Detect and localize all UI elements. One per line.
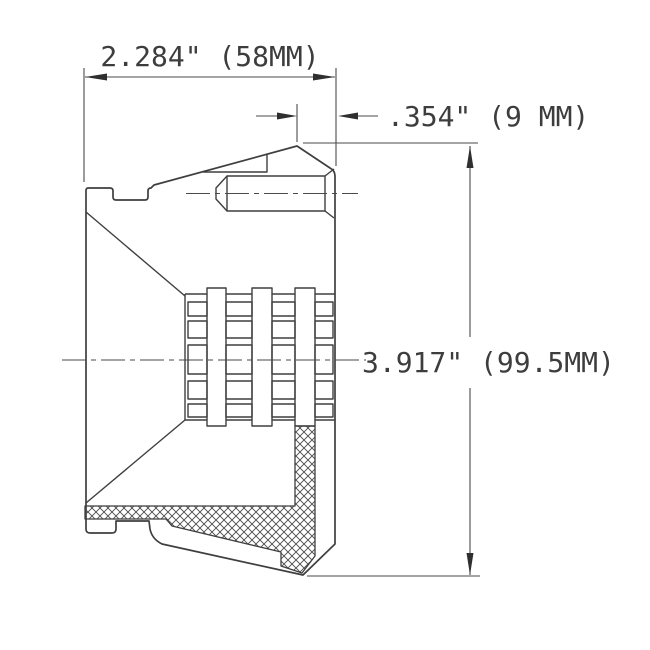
dim-height-arrow-top <box>467 146 474 168</box>
technical-drawing-canvas: 2.284" (58MM) .354" (9 MM) 3.917" (99.5M… <box>0 0 650 650</box>
dim-height-label: 3.917" (99.5MM) <box>362 346 615 379</box>
drawing-page: 2.284" (58MM) .354" (9 MM) 3.917" (99.5M… <box>0 0 650 650</box>
dim-width-label: 2.284" (58MM) <box>100 40 319 73</box>
dim-depth: .354" (9 MM) <box>256 100 589 142</box>
dim-height-arrow-bottom <box>467 553 474 575</box>
dim-width-arrow-right <box>313 74 335 81</box>
dim-depth-label: .354" (9 MM) <box>387 100 589 133</box>
dim-width-arrow-left <box>85 74 107 81</box>
dim-depth-arrow-right <box>338 113 358 120</box>
dim-depth-arrow-left <box>277 113 297 120</box>
